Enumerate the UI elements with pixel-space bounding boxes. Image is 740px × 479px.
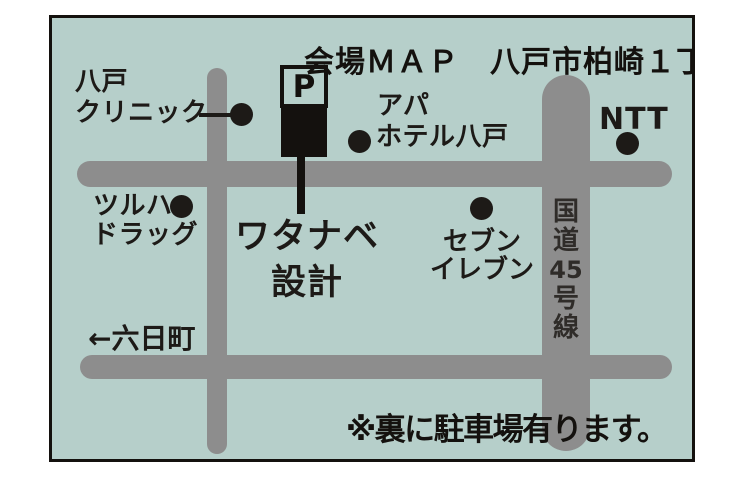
tsuruha-line2: ドラッグ bbox=[92, 220, 198, 250]
clinic-line1: 八戸 bbox=[75, 67, 128, 97]
clinic-location-dot bbox=[230, 103, 253, 126]
parking-sign: P bbox=[280, 65, 328, 108]
landmark-label-seven-eleven: セブンイレブン bbox=[412, 228, 552, 284]
road-vertical-west bbox=[207, 68, 227, 454]
route45-char: 道 bbox=[553, 227, 579, 256]
seven-line2: イレブン bbox=[430, 255, 534, 285]
landmark-label-ntt: NTT bbox=[599, 102, 669, 137]
parking-icon: P bbox=[293, 69, 316, 105]
map-title: 会場ＭＡＰ 八戸市柏崎１丁目 bbox=[304, 37, 695, 81]
destination-line1: ワタナベ bbox=[235, 217, 379, 257]
map-frame: 会場ＭＡＰ 八戸市柏崎１丁目 国 道 45 号 線 P ワタナベ設計 八戸クリニ… bbox=[49, 15, 695, 462]
destination-line2: 設計 bbox=[271, 263, 343, 303]
seven-eleven-location-dot bbox=[470, 197, 493, 220]
road-horizontal-north bbox=[77, 161, 672, 187]
road-horizontal-south bbox=[80, 355, 672, 379]
route45-char: 線 bbox=[553, 314, 579, 343]
apa-location-dot bbox=[348, 130, 371, 153]
tsuruha-line1: ツルハ bbox=[92, 191, 173, 221]
destination-label: ワタナベ設計 bbox=[227, 214, 387, 306]
venue-pointer-line bbox=[297, 157, 305, 214]
landmark-label-clinic: 八戸クリニック bbox=[75, 67, 208, 129]
parking-note: ※裏に駐車場有ります。 bbox=[346, 404, 667, 449]
tsuruha-location-dot bbox=[170, 195, 193, 218]
venue-building-marker bbox=[281, 107, 327, 157]
landmark-label-apa-hotel: アパホテル八戸 bbox=[376, 91, 509, 153]
clinic-pointer-line bbox=[199, 113, 234, 117]
ntt-location-dot bbox=[616, 132, 639, 155]
apa-line1: アパ bbox=[376, 91, 429, 121]
route45-char: 45 bbox=[549, 256, 582, 285]
clinic-line2: クリニック bbox=[75, 98, 208, 128]
route45-char: 国 bbox=[553, 198, 579, 227]
route45-char: 号 bbox=[553, 285, 579, 314]
map-screenshot: 会場ＭＡＰ 八戸市柏崎１丁目 国 道 45 号 線 P ワタナベ設計 八戸クリニ… bbox=[0, 0, 740, 479]
direction-west-label: ←六日町 bbox=[88, 317, 195, 357]
seven-line1: セブン bbox=[443, 227, 521, 257]
apa-line2: ホテル八戸 bbox=[376, 122, 509, 152]
